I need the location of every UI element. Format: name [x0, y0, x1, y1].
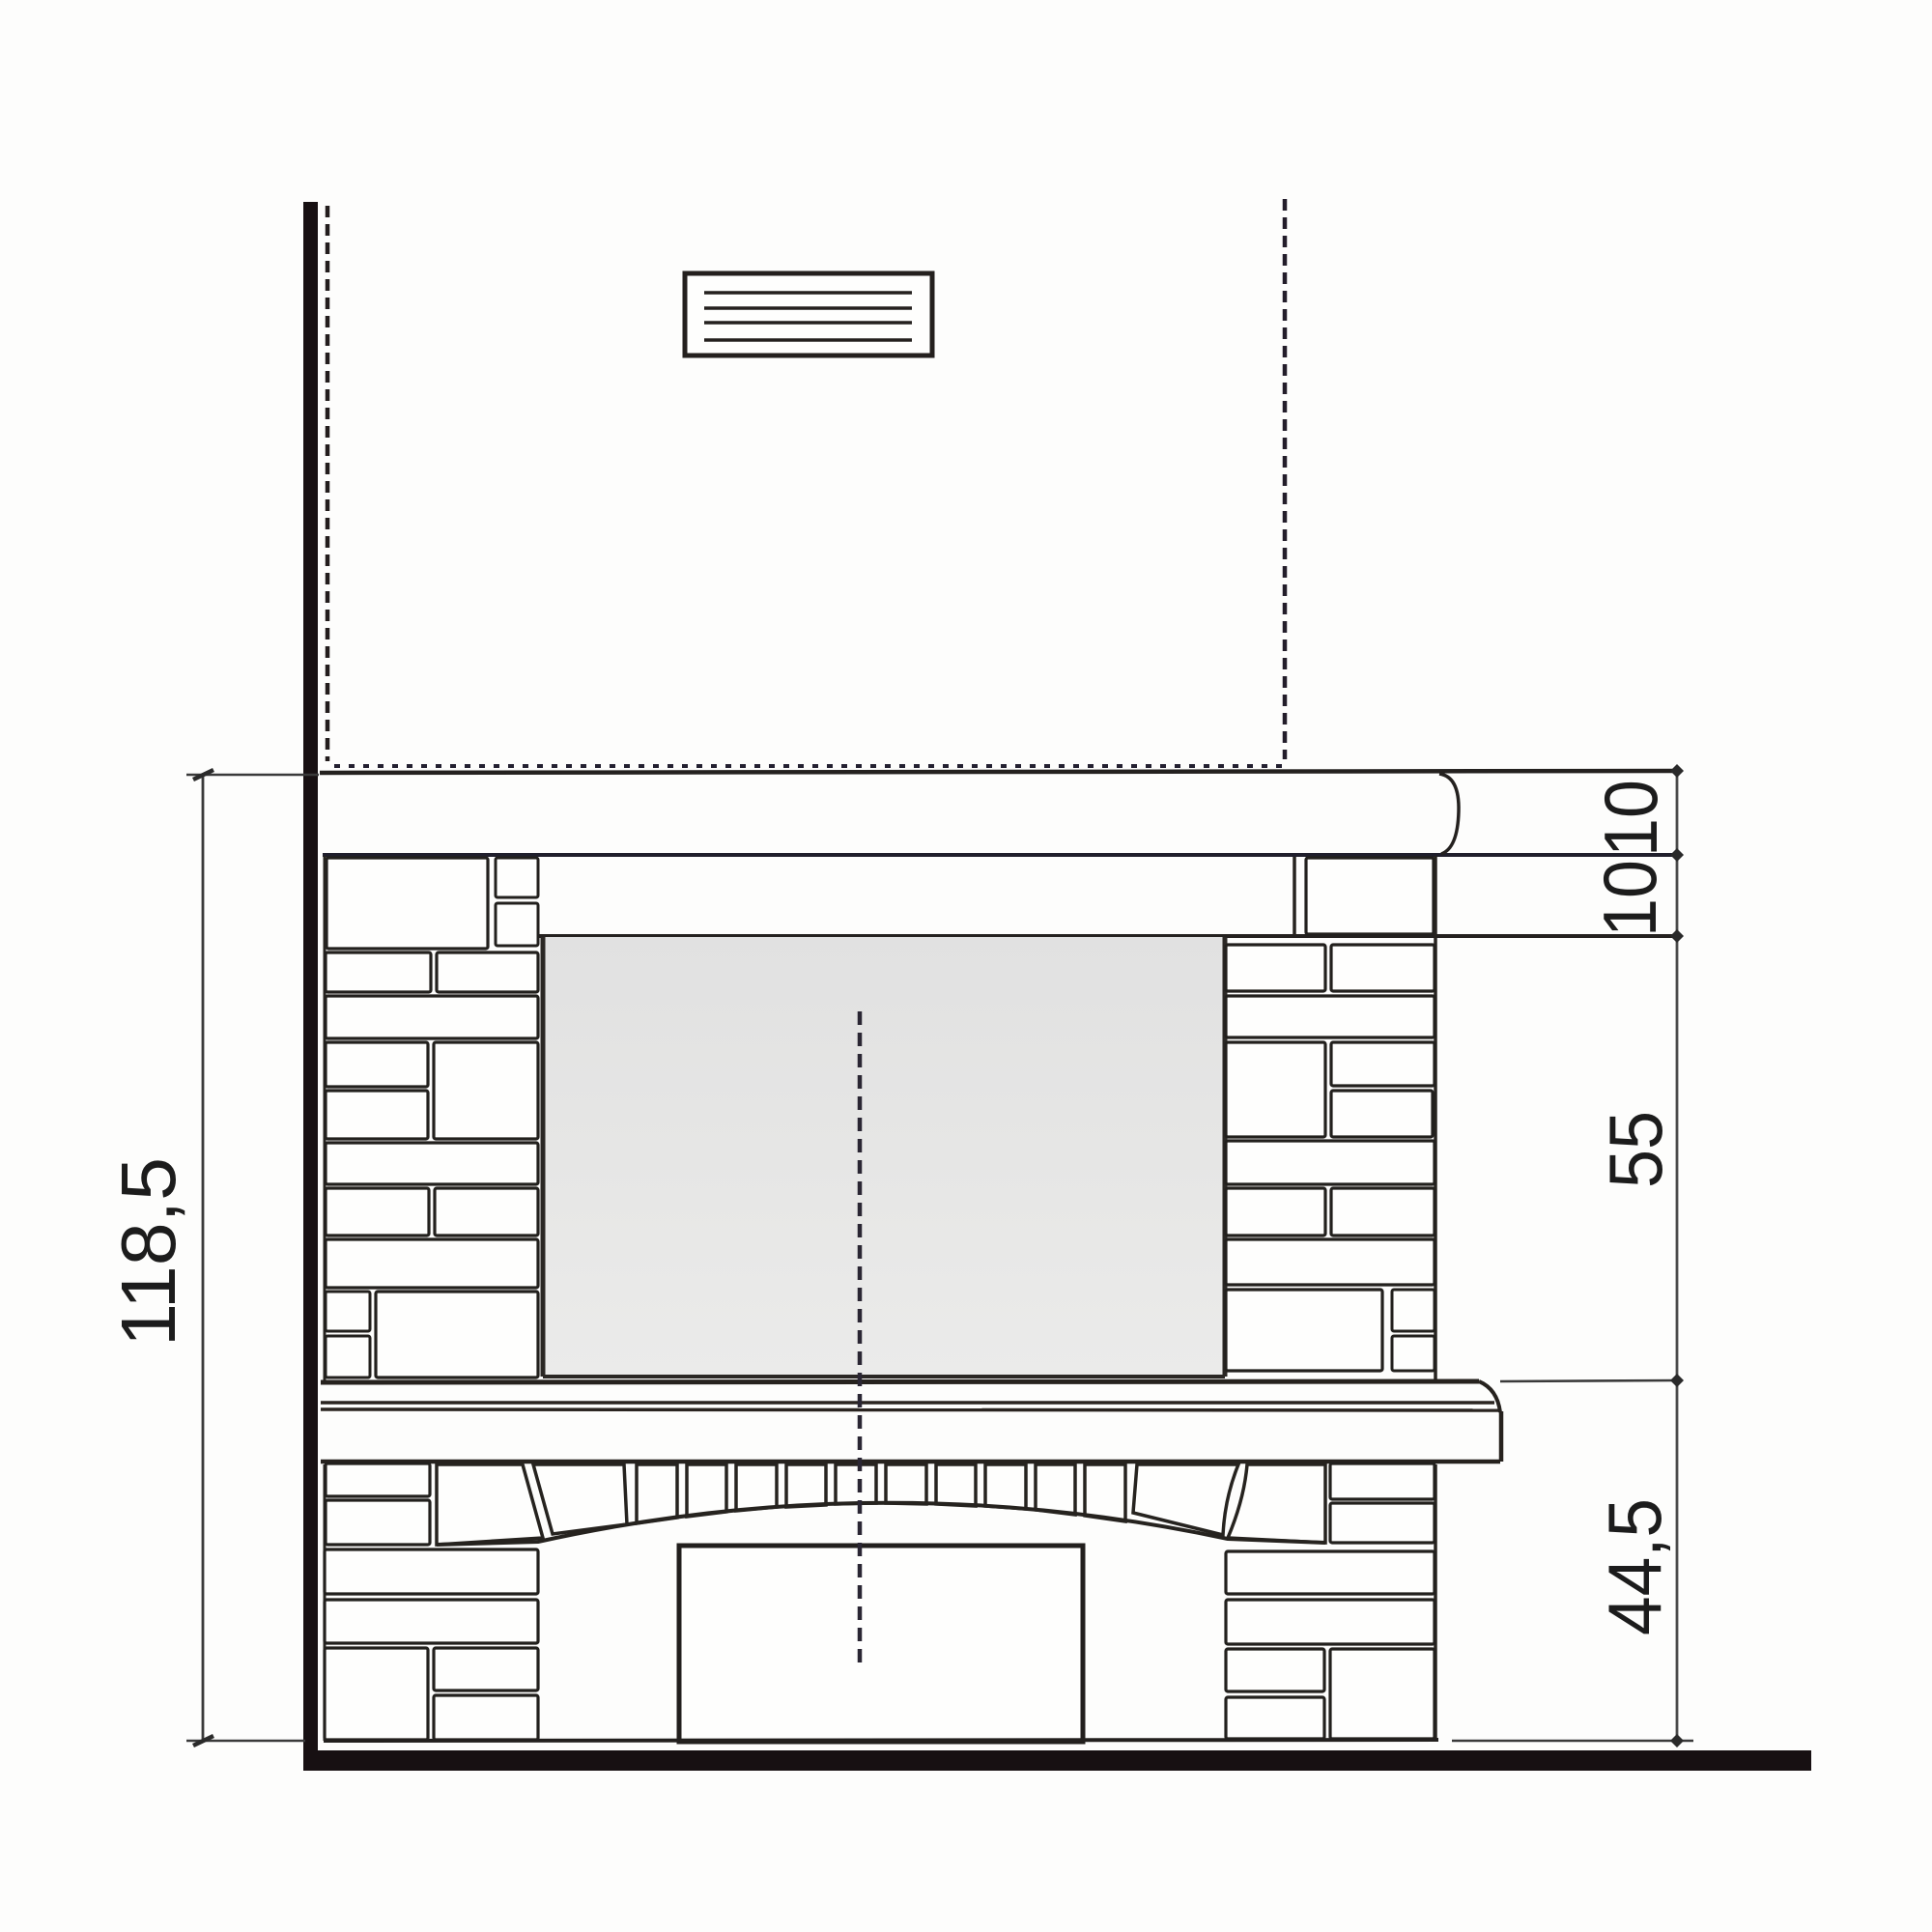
svg-text:44,5: 44,5: [1592, 1498, 1677, 1635]
svg-text:55: 55: [1593, 1111, 1678, 1188]
svg-text:10: 10: [1587, 860, 1672, 937]
svg-text:118,5: 118,5: [105, 1157, 191, 1347]
svg-text:10: 10: [1588, 780, 1673, 857]
